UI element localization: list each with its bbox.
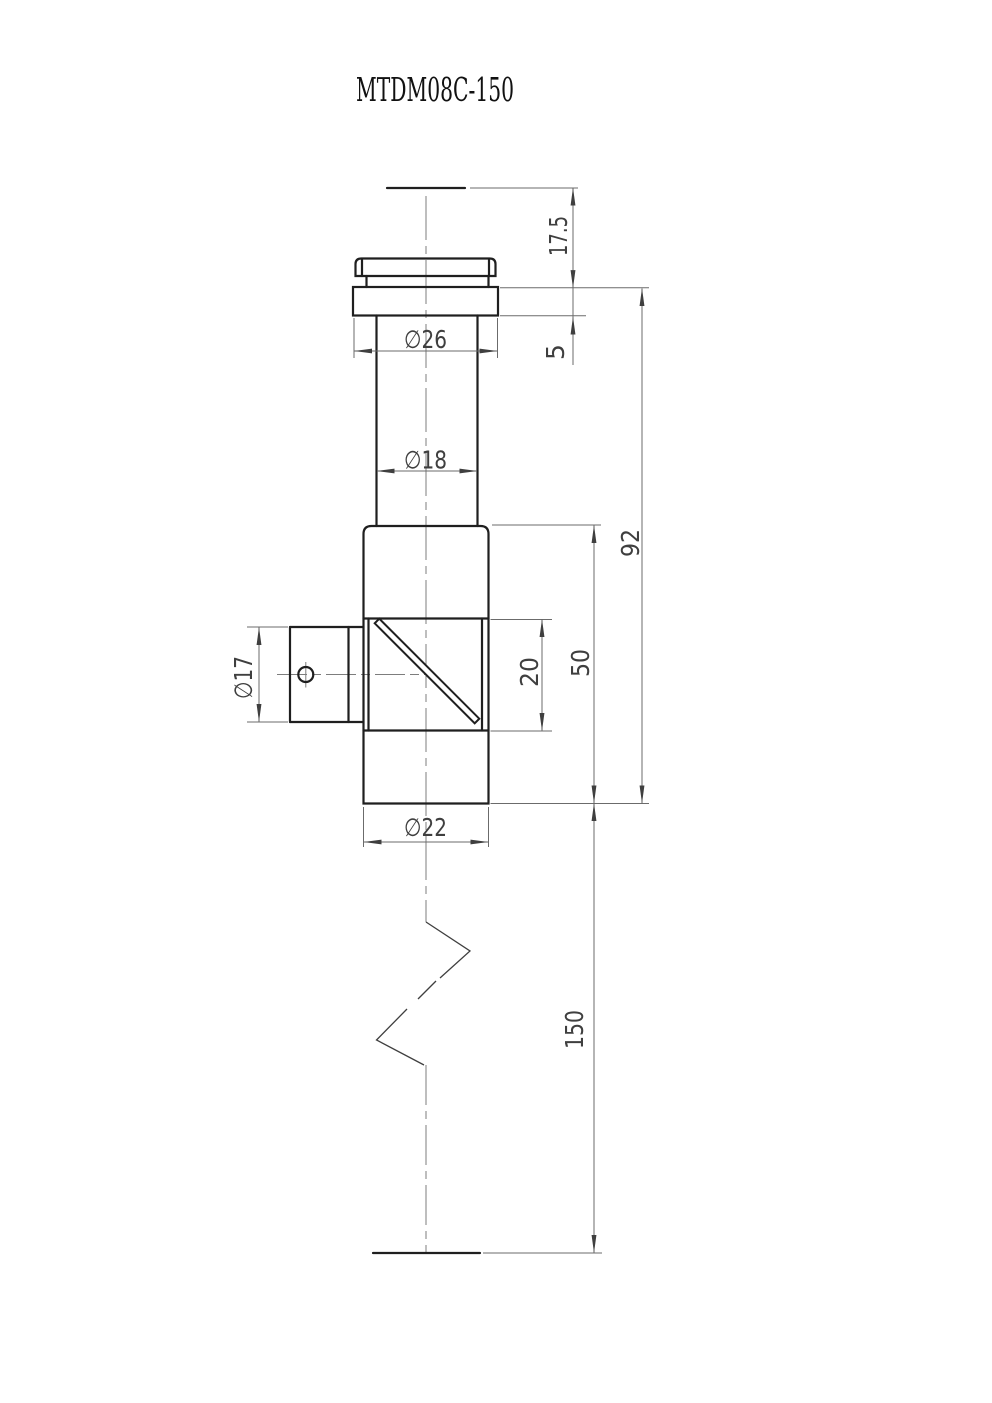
dim-label-17-5: 17.5 — [544, 216, 573, 256]
dim-label-150: 150 — [560, 1010, 589, 1049]
center-lines — [277, 196, 426, 1253]
part-outline — [290, 188, 498, 1253]
mirror-plate — [375, 619, 480, 724]
dimension-lines — [259, 188, 642, 1253]
cap-thread-ring — [367, 276, 489, 287]
dim-label-50: 50 — [566, 649, 595, 677]
dim-label-20: 20 — [515, 657, 544, 687]
extension-lines — [247, 188, 649, 1253]
dim-label-dia22: ∅22 — [404, 813, 447, 842]
dim-label-92: 92 — [616, 529, 645, 557]
dim-label-5: 5 — [541, 344, 570, 360]
dim-label-dia17: ∅17 — [229, 656, 258, 699]
dim-label-dia26: ∅26 — [404, 325, 447, 354]
drawing-title: MTDM08C-150 — [356, 70, 514, 109]
drawing-sheet: MTDM08C-150 — [0, 0, 992, 1403]
dim-label-dia18: ∅18 — [404, 446, 447, 475]
technical-drawing-canvas: MTDM08C-150 — [0, 0, 992, 1403]
break-symbol — [377, 922, 471, 1065]
dimension-labels: ∅26 ∅18 ∅22 17.5 5 92 50 20 ∅17 150 — [229, 216, 645, 1049]
